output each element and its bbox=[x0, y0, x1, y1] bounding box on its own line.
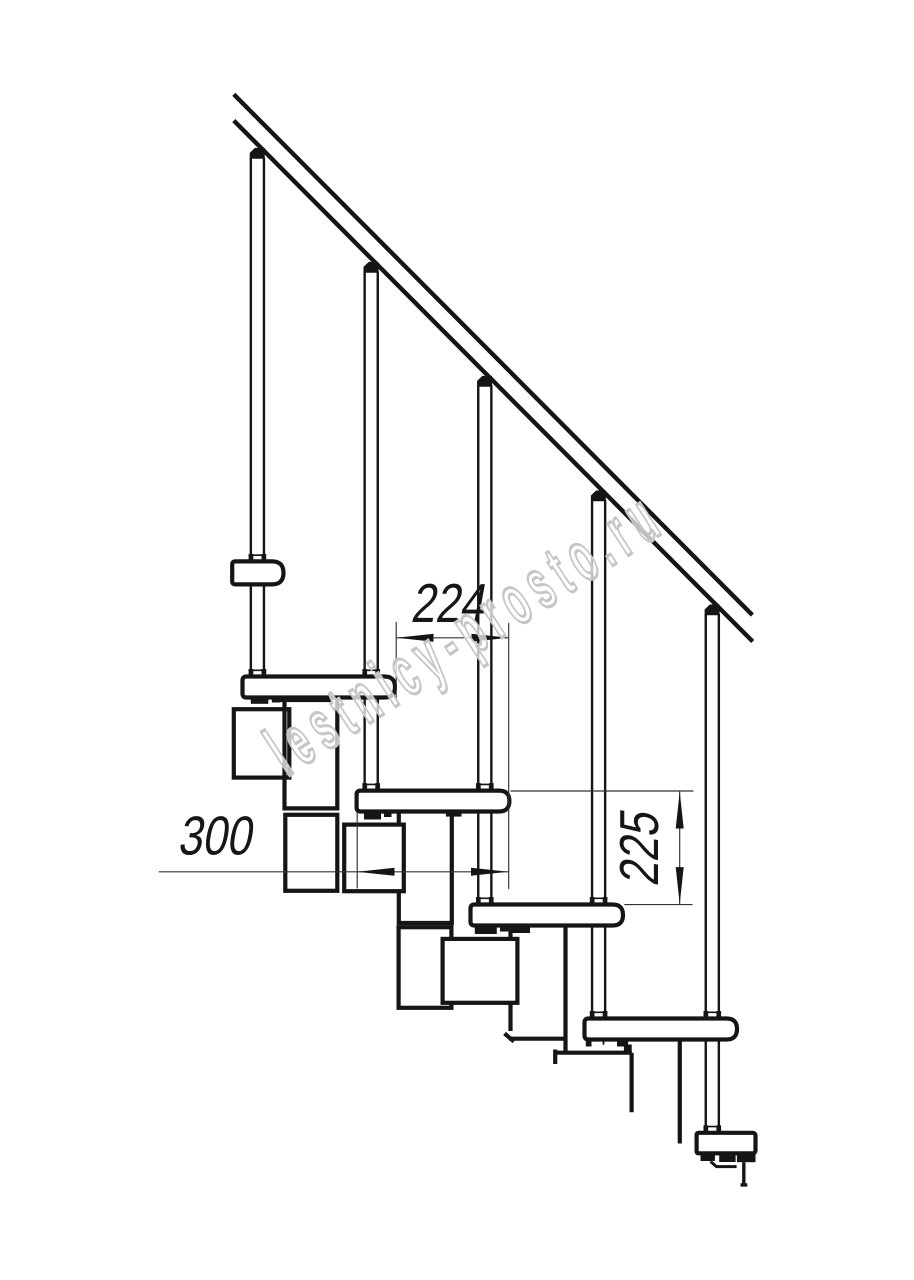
svg-text:300: 300 bbox=[175, 804, 260, 866]
svg-text:225: 225 bbox=[608, 804, 670, 889]
